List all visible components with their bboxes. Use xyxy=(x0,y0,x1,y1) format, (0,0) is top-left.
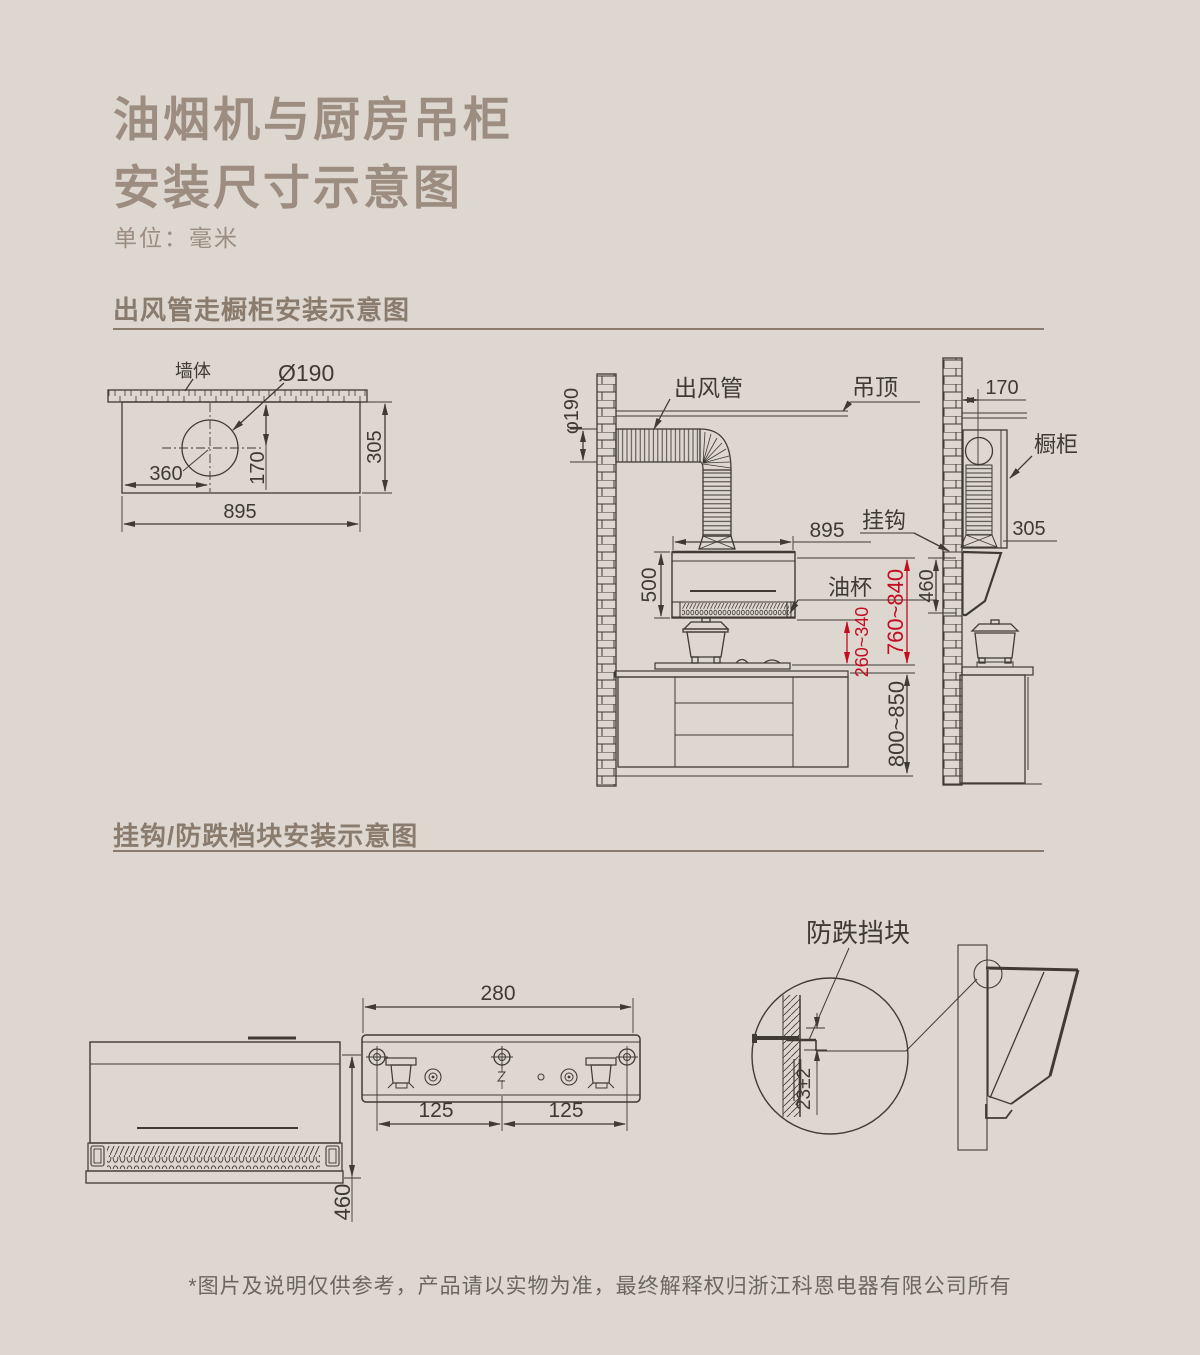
bracket-view-linework xyxy=(362,998,640,1131)
oil-cup-label: 油杯 xyxy=(828,575,872,600)
hook-fitting-left xyxy=(386,1058,416,1088)
wall-label: 墙体 xyxy=(175,361,211,381)
duct-installation-drawing: 墙体 Ø190 360 170 305 895 出风管 吊顶 φ190 895 … xyxy=(0,350,1200,810)
section-hook-divider xyxy=(113,850,1044,852)
unit-label: 单位：毫米 xyxy=(114,219,239,253)
hook-label: 挂钩 xyxy=(862,508,906,533)
offset-left-dim: 360 xyxy=(149,463,182,485)
width-dim: 895 xyxy=(223,501,256,523)
cabinet-label: 橱柜 xyxy=(1034,432,1078,457)
offset-wall-dim: 170 xyxy=(247,451,269,484)
hood-width-dim: 895 xyxy=(809,519,844,542)
side-hood-height-dim: 460 xyxy=(916,569,938,602)
duct-label: 出风管 xyxy=(674,375,743,401)
screw-left xyxy=(366,1046,388,1068)
hood-front-linework xyxy=(86,1038,361,1222)
footer-disclaimer: *图片及说明仅供参考，产品请以实物为准，最终解释权归浙江科恩电器有限公司所有 xyxy=(0,1270,1200,1300)
hood-bottom-clearance-dim: 260~340 xyxy=(852,607,872,678)
counter-height-dim: 800~850 xyxy=(884,681,909,767)
pitch-left-dim: 125 xyxy=(418,1099,453,1122)
hook-installation-drawing: 460 280 125 125 防跌挡块 23±2 xyxy=(0,880,1200,1280)
section-hook-heading: 挂钩/防跌档块安装示意图 xyxy=(113,816,418,853)
duct-diameter-dim: φ190 xyxy=(561,388,583,434)
front-hood-height-dim: 460 xyxy=(330,1184,355,1221)
wall-duct-dim: 170 xyxy=(985,377,1018,399)
cabinet-depth-dim: 305 xyxy=(1012,518,1045,540)
page-title-line2: 安装尺寸示意图 xyxy=(113,154,513,222)
side-view-linework xyxy=(928,358,1057,785)
hood-top-clearance-dim: 760~840 xyxy=(883,569,908,655)
hook-clearance-dim: 23±2 xyxy=(794,1068,815,1110)
bracket-width-dim: 280 xyxy=(480,982,515,1005)
depth-dim: 305 xyxy=(364,430,386,463)
screw-right xyxy=(616,1046,638,1068)
pitch-right-dim: 125 xyxy=(548,1099,583,1122)
installation-diagram-page: 油烟机与厨房吊柜 安装尺寸示意图 单位：毫米 出风管走橱柜安装示意图 挂钩/防跌… xyxy=(0,0,1200,1355)
anti-fall-block-label: 防跌挡块 xyxy=(806,918,910,948)
hole-diameter-dim: Ø190 xyxy=(278,360,334,386)
detail-view-linework xyxy=(752,945,1078,1150)
page-title-line1: 油烟机与厨房吊柜 xyxy=(113,86,513,154)
page-title: 油烟机与厨房吊柜 安装尺寸示意图 xyxy=(113,86,513,222)
ceiling-label: 吊顶 xyxy=(852,374,898,400)
section-duct-heading: 出风管走橱柜安装示意图 xyxy=(113,290,410,327)
hook-fitting-right xyxy=(586,1058,616,1088)
section-duct-divider xyxy=(113,328,1044,330)
hood-height-dim: 500 xyxy=(638,567,661,602)
